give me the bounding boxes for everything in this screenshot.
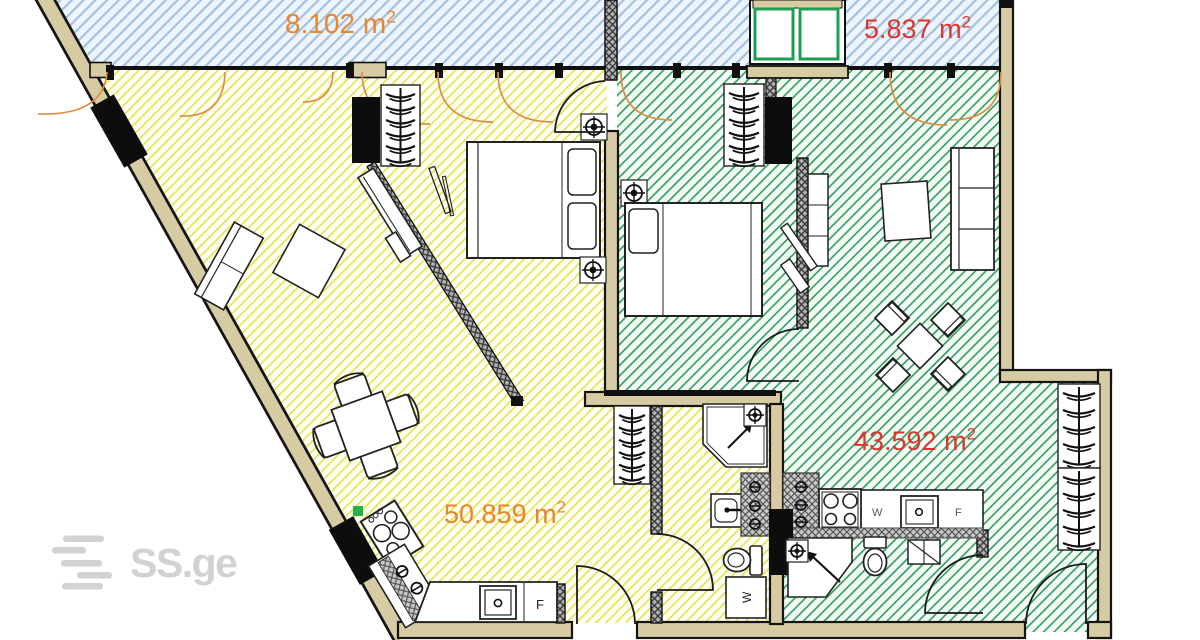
svg-text:43.592 m2: 43.592 m2 [854,425,976,456]
svg-text:F: F [955,507,962,519]
svg-text:8.102 m2: 8.102 m2 [285,6,396,39]
svg-text:5.837 m2: 5.837 m2 [864,13,971,44]
svg-text:SS.ge: SS.ge [130,540,237,586]
svg-text:F: F [536,597,544,612]
svg-text:W: W [740,591,754,603]
svg-text:W: W [872,507,883,519]
svg-text:50.859 m2: 50.859 m2 [444,498,566,529]
